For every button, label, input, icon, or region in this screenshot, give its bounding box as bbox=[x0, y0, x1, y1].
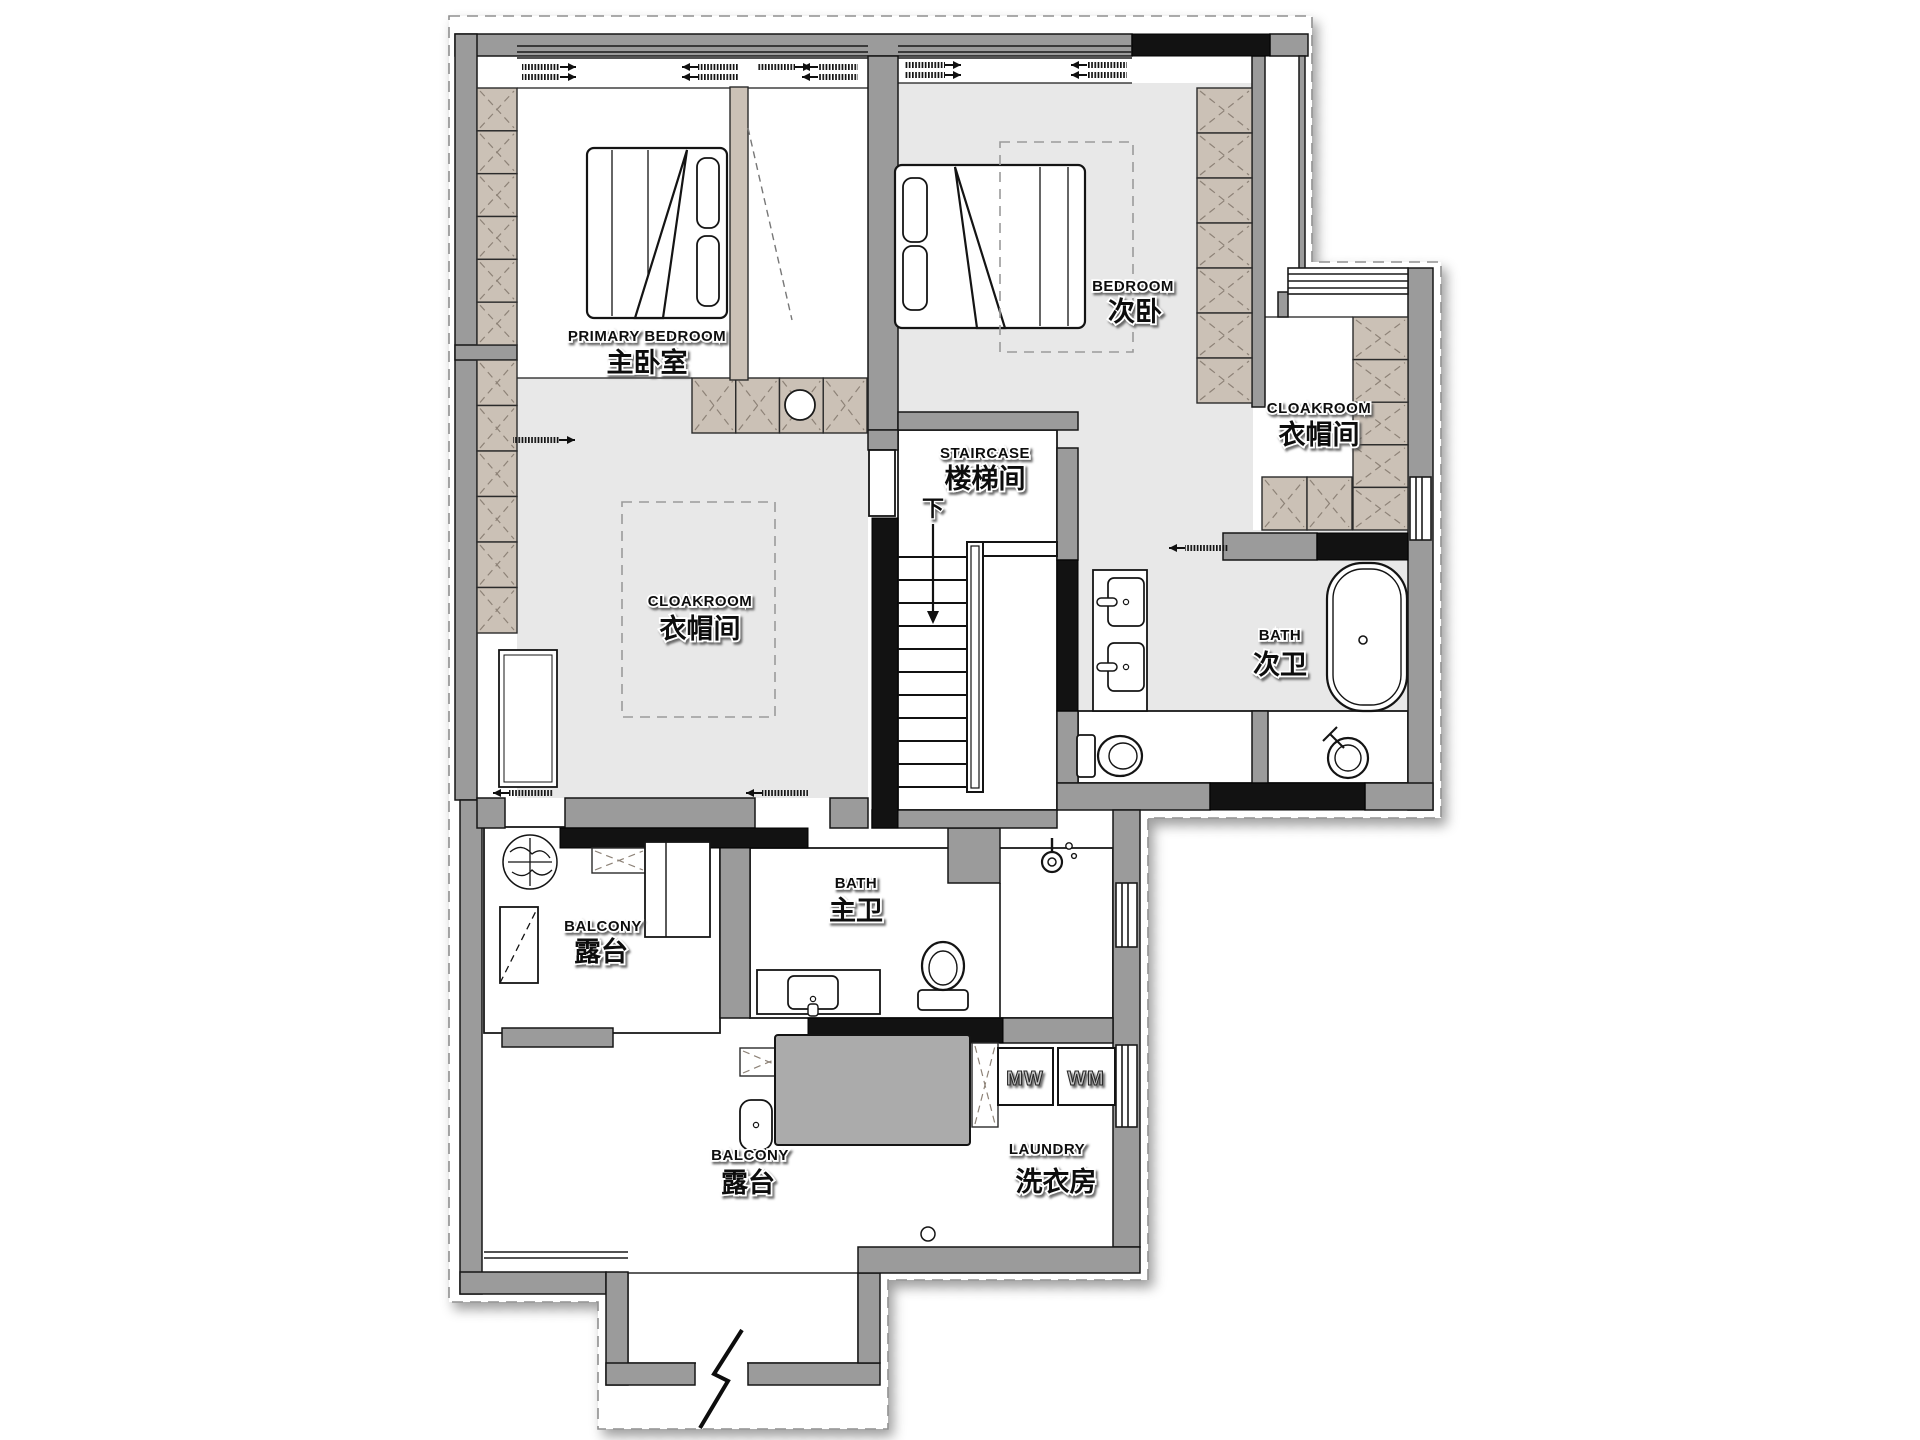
tall-cabinet-panel bbox=[730, 87, 748, 380]
wall bbox=[1113, 810, 1140, 1247]
dresser-row bbox=[692, 378, 867, 433]
wall-black bbox=[1210, 783, 1365, 810]
plant-icon bbox=[503, 835, 557, 889]
wardrobe-bedroom bbox=[1197, 88, 1252, 403]
window-cloakroom-top bbox=[1288, 268, 1408, 294]
wall bbox=[1365, 783, 1433, 810]
label-cloakroom-right-en: CLOAKROOM bbox=[1267, 400, 1372, 417]
toilet-primary-icon bbox=[918, 942, 968, 1010]
label-balcony-upper-en: BALCONY bbox=[564, 918, 642, 935]
wall bbox=[502, 1028, 613, 1047]
wall bbox=[460, 800, 482, 1294]
label-cloakroom-center-en: CLOAKROOM bbox=[648, 593, 753, 610]
label-laundry-en: LAUNDRY bbox=[1009, 1141, 1085, 1158]
wall bbox=[1270, 34, 1308, 56]
label-bath-primary-zh: 主卫 bbox=[829, 896, 883, 926]
wall-black bbox=[1057, 560, 1078, 711]
wall-black bbox=[872, 518, 898, 828]
label-bath-secondary-en: BATH bbox=[1259, 627, 1302, 644]
wall-between-bedrooms bbox=[868, 56, 898, 430]
floor-plan-svg: PRIMARY BEDROOM 主卧室 BEDROOM 次卧 CLOAKROOM… bbox=[0, 0, 1920, 1440]
cabinet-laundry bbox=[972, 1043, 998, 1127]
label-washer: WM bbox=[1067, 1068, 1105, 1090]
planter-icon bbox=[500, 907, 538, 983]
wall bbox=[1000, 1018, 1113, 1043]
label-stairs-down: 下 bbox=[922, 496, 944, 521]
wall bbox=[455, 345, 517, 360]
label-bedroom-zh: 次卧 bbox=[1108, 297, 1162, 327]
wall bbox=[1252, 711, 1268, 783]
wall bbox=[565, 798, 755, 828]
wall bbox=[1278, 292, 1288, 317]
balcony-bench-icon bbox=[645, 842, 710, 937]
dresser-basin-icon bbox=[785, 390, 815, 420]
wall-pier bbox=[948, 828, 1000, 883]
label-primary-bedroom-en: PRIMARY BEDROOM bbox=[568, 328, 726, 345]
wall-black bbox=[1317, 533, 1408, 560]
closet-icon bbox=[499, 650, 557, 787]
double-vanity-icon bbox=[1093, 570, 1147, 711]
table-icon bbox=[775, 1035, 970, 1145]
chair-dot bbox=[753, 1122, 758, 1127]
wall bbox=[898, 412, 1078, 430]
label-bedroom-en: BEDROOM bbox=[1092, 278, 1174, 295]
wall bbox=[1252, 56, 1265, 407]
label-primary-bedroom-zh: 主卧室 bbox=[607, 347, 688, 378]
wardrobe-cloakroom-right bbox=[1353, 317, 1408, 530]
label-staircase-en: STAIRCASE bbox=[940, 445, 1030, 462]
wall bbox=[477, 798, 505, 828]
window-bath-right bbox=[1410, 477, 1431, 540]
label-bath-primary-en: BATH bbox=[835, 875, 878, 892]
wall bbox=[720, 828, 750, 1018]
wall bbox=[868, 430, 898, 450]
window-shower bbox=[1116, 883, 1137, 947]
floor-drain bbox=[921, 1227, 935, 1241]
label-staircase-zh: 楼梯间 bbox=[945, 464, 1026, 494]
label-laundry-zh: 洗衣房 bbox=[1016, 1166, 1097, 1197]
wall bbox=[858, 1247, 1140, 1273]
wall bbox=[1223, 533, 1317, 560]
bed-primary-icon bbox=[587, 148, 727, 318]
wall bbox=[858, 1273, 880, 1363]
bathtub-icon bbox=[1327, 563, 1407, 711]
label-balcony-lower-en: BALCONY bbox=[711, 1147, 789, 1164]
wall-black bbox=[1132, 34, 1270, 56]
wall-left bbox=[455, 34, 477, 800]
label-microwave: MW bbox=[1006, 1068, 1044, 1090]
toilet-secondary-icon bbox=[1077, 735, 1142, 777]
wall bbox=[830, 798, 868, 828]
floor-plan-page: PRIMARY BEDROOM 主卧室 BEDROOM 次卧 CLOAKROOM… bbox=[0, 0, 1920, 1440]
wall bbox=[606, 1363, 695, 1385]
label-balcony-upper-zh: 露台 bbox=[574, 936, 628, 967]
wall bbox=[1057, 448, 1078, 560]
wardrobe-cloakroom-right-bottom bbox=[1262, 477, 1352, 530]
wall bbox=[460, 1272, 606, 1294]
wall bbox=[1057, 783, 1210, 810]
wardrobe-cloakroom-left bbox=[477, 360, 517, 633]
label-bath-secondary-zh: 次卫 bbox=[1253, 650, 1307, 680]
wall bbox=[1299, 56, 1305, 270]
wall bbox=[1057, 711, 1078, 783]
wardrobe-primary-bedroom bbox=[477, 88, 517, 345]
wall bbox=[872, 810, 1057, 828]
vanity-primary-icon bbox=[757, 970, 880, 1016]
label-cloakroom-center-zh: 衣帽间 bbox=[660, 613, 741, 644]
label-balcony-lower-zh: 露台 bbox=[721, 1167, 775, 1198]
wall bbox=[748, 1363, 880, 1385]
stair-door-leaf bbox=[869, 450, 895, 516]
window-laundry bbox=[1116, 1045, 1137, 1127]
label-cloakroom-right-zh: 衣帽间 bbox=[1279, 419, 1360, 450]
bed-secondary-icon bbox=[895, 165, 1085, 328]
